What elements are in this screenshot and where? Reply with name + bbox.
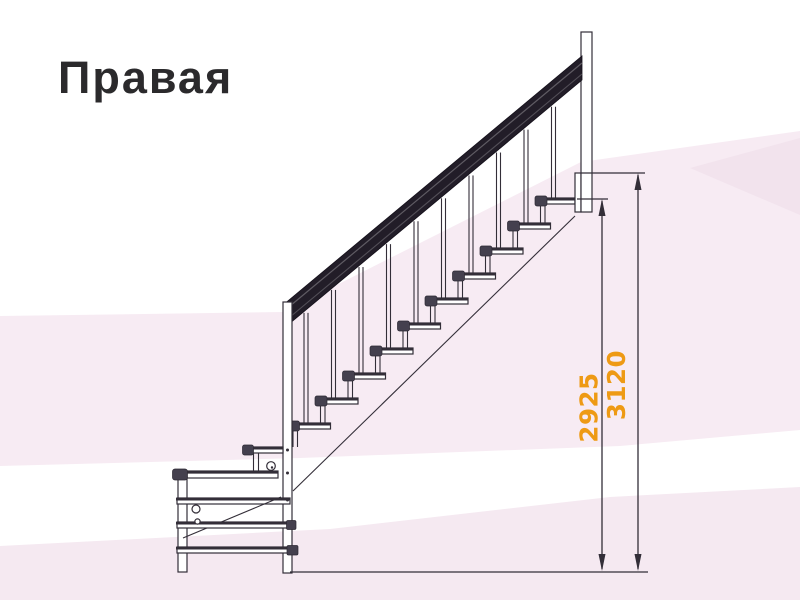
background-band-upper (0, 131, 800, 466)
bracket-bolt (267, 462, 276, 471)
base-frame (173, 445, 299, 572)
screw-dot (286, 472, 289, 475)
frame-middle-bar-cap (287, 521, 297, 530)
bracket-bolt-pin (271, 466, 273, 468)
tread-end-cap (398, 321, 410, 331)
frame-bolt-large (192, 505, 200, 513)
tread-end-cap (343, 371, 355, 381)
screw-dot (286, 449, 289, 452)
dimension-value-3120: 3120 (602, 350, 631, 420)
background-band-lower (0, 487, 800, 600)
tread-end-cap (315, 396, 327, 406)
stair-diagram-page: Правая (0, 0, 800, 600)
tread-end-cap (370, 346, 382, 356)
top-post (581, 32, 592, 212)
turn-tread-upper-cap (243, 445, 254, 455)
tread-end-cap (453, 271, 465, 281)
newel-post (283, 302, 292, 573)
page-title: Правая (58, 52, 233, 104)
landing-fascia (575, 173, 581, 212)
background-facets (0, 131, 800, 600)
frame-bolt-small (195, 519, 200, 524)
dimension-value-2925: 2925 (575, 372, 604, 442)
frame-lower-bar-cap (287, 546, 298, 556)
tread-end-cap (425, 296, 437, 306)
tread-end-cap (508, 221, 520, 231)
turn-tread-wide-cap (173, 469, 188, 480)
tread-end-cap (535, 196, 547, 206)
screw-dot (286, 499, 289, 502)
tread-end-cap (480, 246, 492, 256)
